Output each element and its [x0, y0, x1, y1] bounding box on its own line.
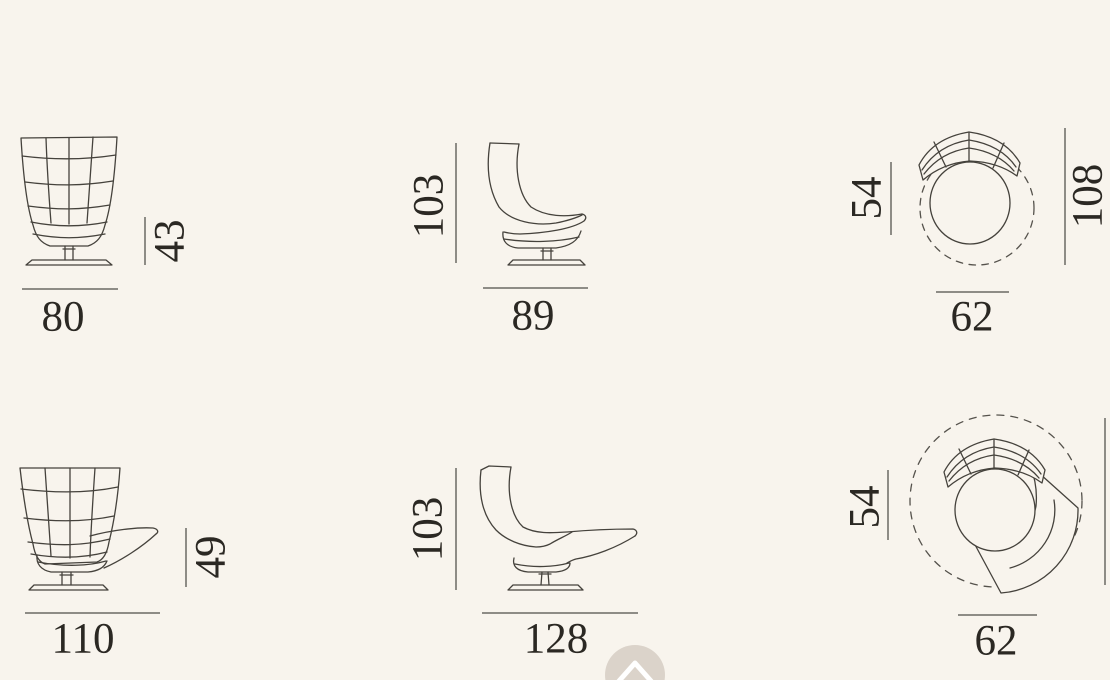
- armchair-side-width-label: 89: [512, 295, 555, 338]
- backrest-profile: [488, 143, 585, 234]
- chaise-side-view-drawing: [476, 460, 644, 592]
- chaise-front-width-label: 110: [52, 618, 115, 661]
- armchair-front-height-label: 43: [149, 220, 192, 263]
- dimension-line: [1104, 418, 1106, 585]
- seat-top: [930, 162, 1010, 244]
- dimension-line: [483, 287, 588, 289]
- chaise-front-view-drawing: [14, 462, 189, 594]
- dimension-line: [455, 468, 457, 590]
- chaise-side-height-label: 103: [407, 497, 450, 562]
- technical-drawing-sheet: 80 43 89 103: [0, 0, 1110, 680]
- pedestal-base: [29, 572, 108, 590]
- armchair-side-height-label: 103: [408, 174, 451, 239]
- armchair-top-height-label: 108: [1067, 164, 1110, 229]
- chaise-top-width-label: 62: [975, 620, 1018, 663]
- seat-top: [955, 469, 1035, 551]
- armchair-front-width-label: 80: [42, 296, 85, 339]
- dimension-line: [482, 612, 638, 614]
- leg-rest: [567, 536, 635, 563]
- armchair-top-view-drawing: [903, 122, 1045, 274]
- armchair-top-depth-label: 54: [846, 177, 889, 220]
- armchair-front-view-drawing: [14, 132, 124, 272]
- pedestal-base: [508, 572, 583, 590]
- backrest-grid: [20, 468, 120, 564]
- chaise-side-width-label: 128: [524, 618, 589, 661]
- pedestal-base: [508, 248, 585, 265]
- chevron-up-icon: [605, 645, 665, 680]
- dimension-line: [25, 612, 160, 614]
- backrest-grid: [21, 137, 117, 246]
- pedestal-base: [26, 246, 112, 265]
- dimension-line: [22, 288, 118, 290]
- chaise-top-view-drawing: [900, 408, 1100, 600]
- seat-shell: [514, 558, 570, 572]
- chaise-front-height-label: 49: [190, 536, 233, 579]
- chaise-top-depth-label: 54: [844, 486, 887, 529]
- backrest-profile: [480, 466, 637, 547]
- dimension-line: [958, 614, 1037, 616]
- armchair-side-view-drawing: [478, 138, 594, 270]
- dimension-line: [455, 143, 457, 263]
- scroll-to-top-button[interactable]: [605, 645, 665, 680]
- armchair-top-width-label: 62: [951, 296, 994, 339]
